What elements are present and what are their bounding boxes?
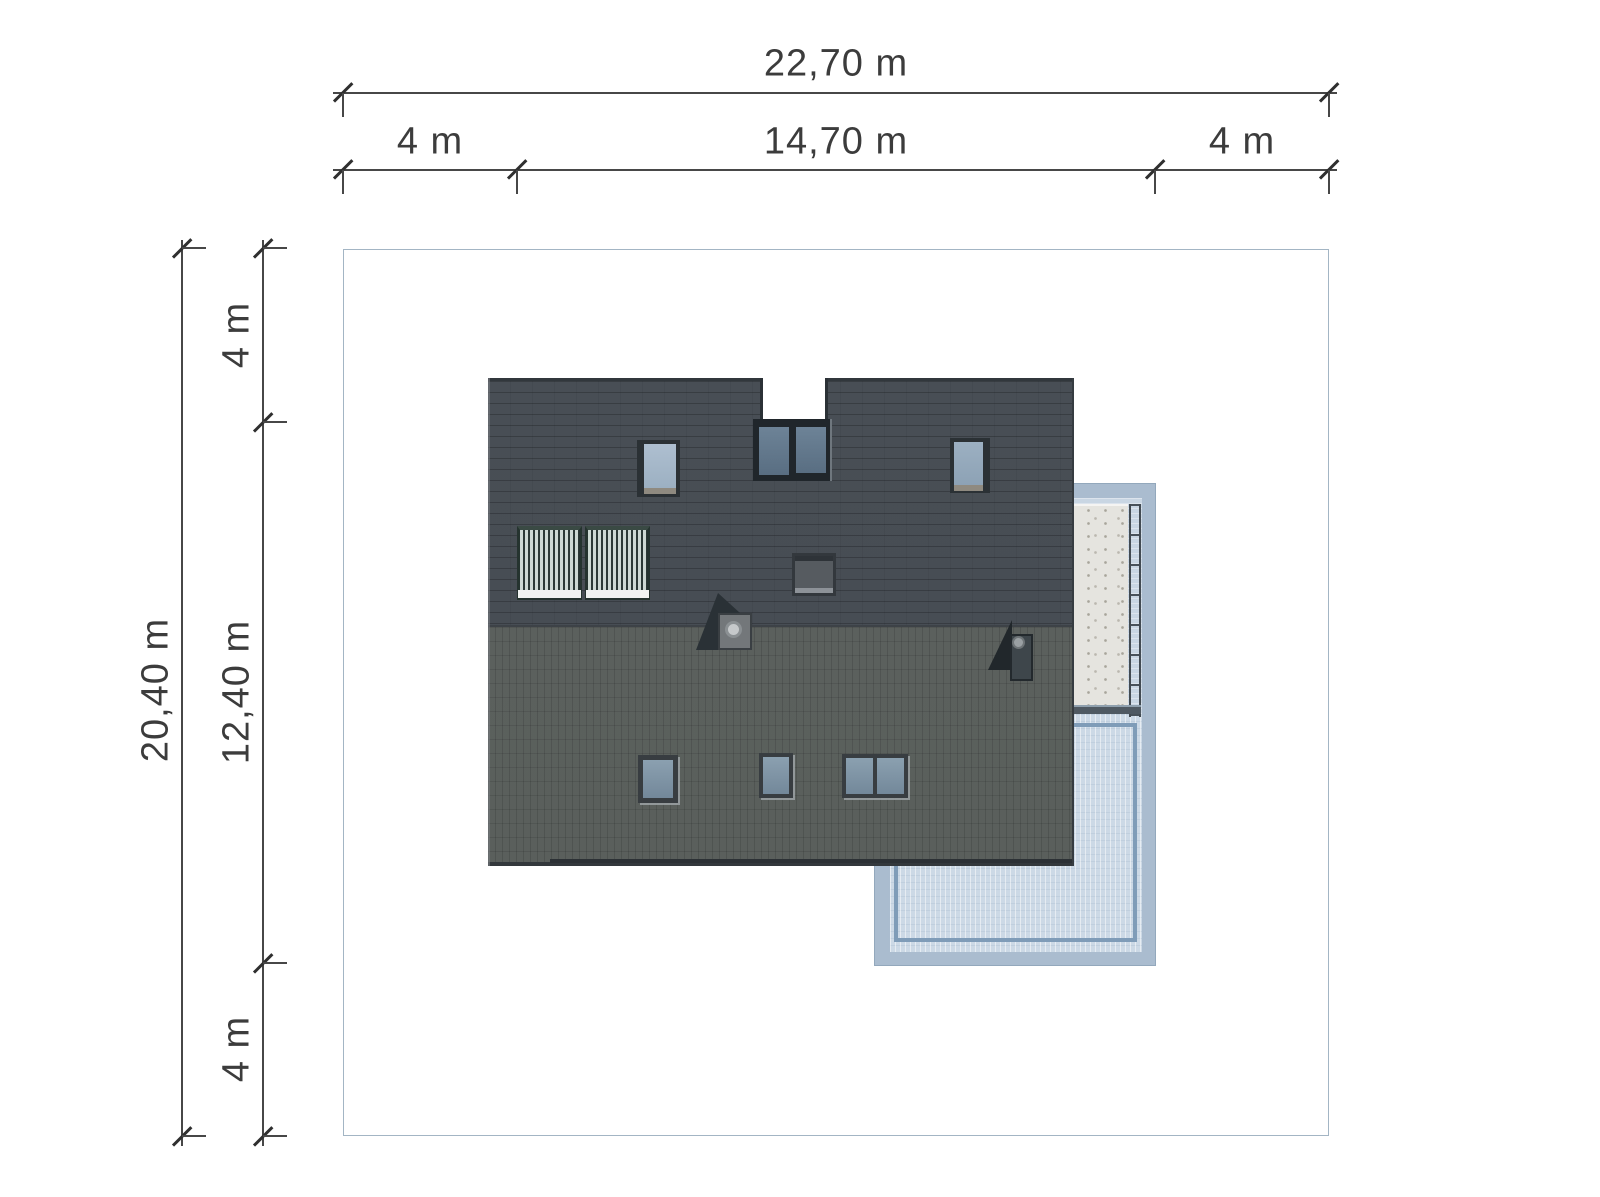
site-plan-canvas: 22,70 m 4 m 14,70 m 4 m 20,40 m 4 m — [0, 0, 1600, 1197]
dim-line — [333, 169, 1337, 171]
skylight-glass — [954, 442, 983, 485]
dim-ext-stub — [263, 962, 287, 964]
dim-ext-stub — [342, 170, 344, 194]
roof-window-glass — [877, 758, 904, 794]
house-roof — [488, 378, 1074, 866]
terrace-glass-railing — [1129, 504, 1141, 717]
roof-window-glass — [763, 757, 789, 794]
dim-ext-stub — [516, 170, 518, 194]
vent-cap — [1012, 636, 1025, 649]
roof-window-glass — [846, 758, 873, 794]
roof-window-pair — [753, 419, 832, 481]
dim-ext-stub — [182, 247, 206, 249]
dim-label-house-depth: 12,40 m — [216, 620, 259, 764]
dim-label-house-width: 14,70 m — [764, 121, 908, 164]
dim-ext-stub — [1328, 93, 1330, 117]
dim-ext-stub — [263, 1135, 287, 1137]
dim-ext-stub — [182, 1135, 206, 1137]
dim-label-total-width: 22,70 m — [764, 43, 908, 86]
roof-window-lower-pair — [842, 754, 908, 798]
roof-window-pane — [759, 427, 789, 475]
roof-eave-shadow — [550, 859, 1074, 863]
dim-ext-stub — [1328, 170, 1330, 194]
dim-label-total-depth: 20,40 m — [135, 618, 178, 762]
roof-window-lower-left — [638, 755, 678, 803]
roof-hatch — [792, 553, 836, 596]
solar-collector-left — [517, 526, 582, 600]
skylight-right — [950, 438, 990, 493]
hatch-sill — [795, 588, 833, 593]
dim-label-top-setback: 4 m — [216, 302, 259, 368]
dim-ext-stub — [1154, 170, 1156, 194]
dim-label-bottom-setback: 4 m — [216, 1016, 259, 1082]
roof-lower-slope — [488, 625, 1074, 866]
dim-line — [333, 92, 1337, 94]
skylight-left — [637, 440, 680, 497]
roof-window-pane — [796, 427, 826, 473]
solar-manifold — [586, 590, 649, 598]
dim-line — [262, 240, 264, 1146]
dim-ext-stub — [263, 247, 287, 249]
chimney-cap — [725, 621, 742, 638]
solar-manifold — [518, 590, 581, 598]
dim-ext-stub — [263, 421, 287, 423]
skylight-sill — [644, 488, 676, 494]
roof-window-lower-middle — [759, 753, 793, 798]
hatch-top-bar — [795, 556, 833, 561]
dim-line — [181, 240, 183, 1146]
dim-label-left-setback: 4 m — [397, 121, 463, 164]
roof-dormer-notch — [760, 378, 828, 422]
skylight-glass — [644, 444, 676, 488]
dim-label-right-setback: 4 m — [1209, 121, 1275, 164]
roof-window-glass — [643, 760, 673, 798]
solar-collector-right — [585, 526, 650, 600]
dim-ext-stub — [342, 93, 344, 117]
skylight-sill — [954, 485, 983, 491]
